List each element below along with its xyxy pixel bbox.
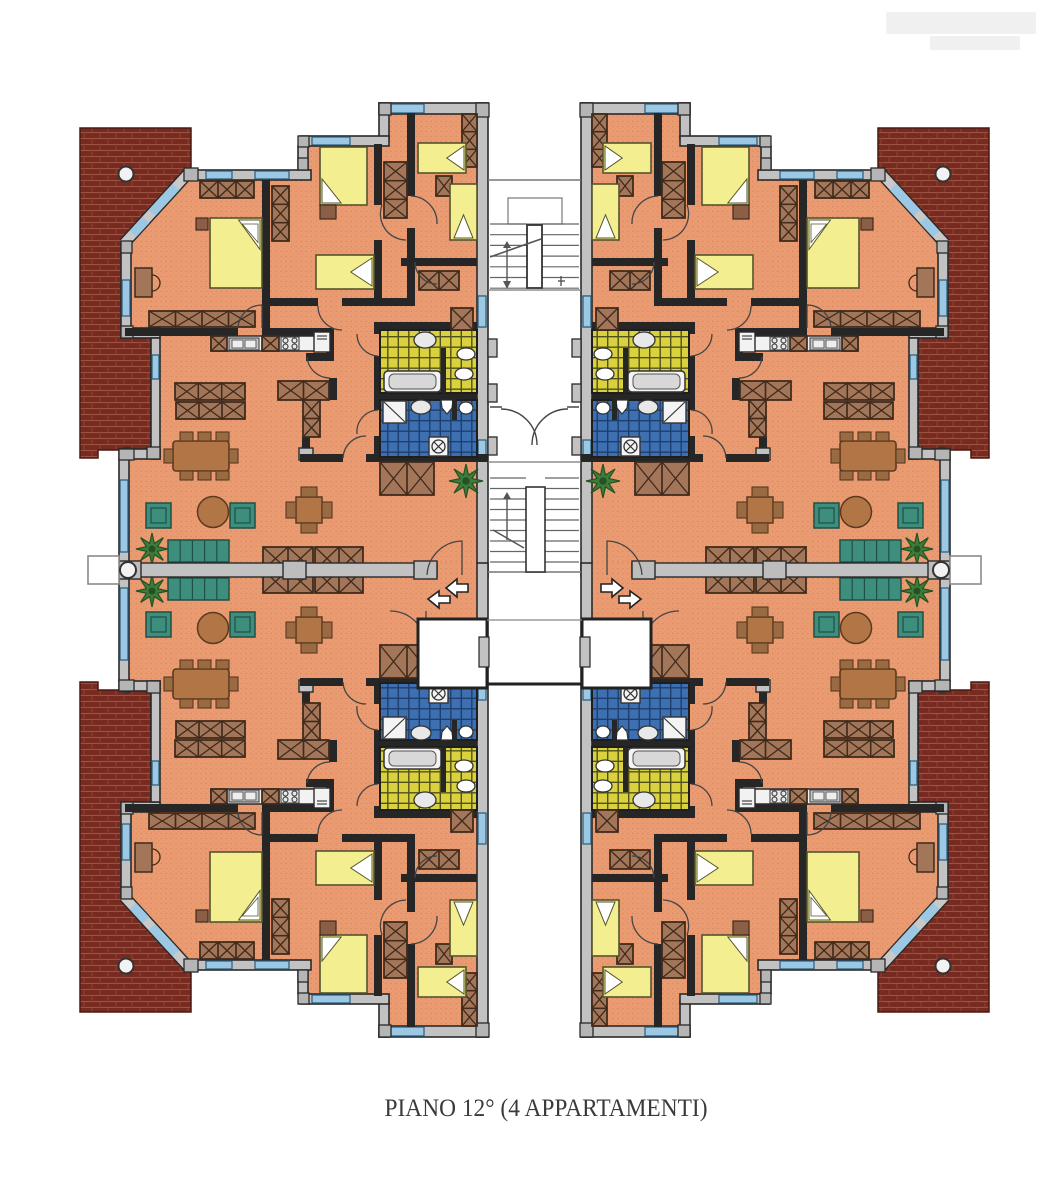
svg-text:PIANO 12° (4 APPARTAMENTI): PIANO 12° (4 APPARTAMENTI) — [385, 1093, 708, 1122]
